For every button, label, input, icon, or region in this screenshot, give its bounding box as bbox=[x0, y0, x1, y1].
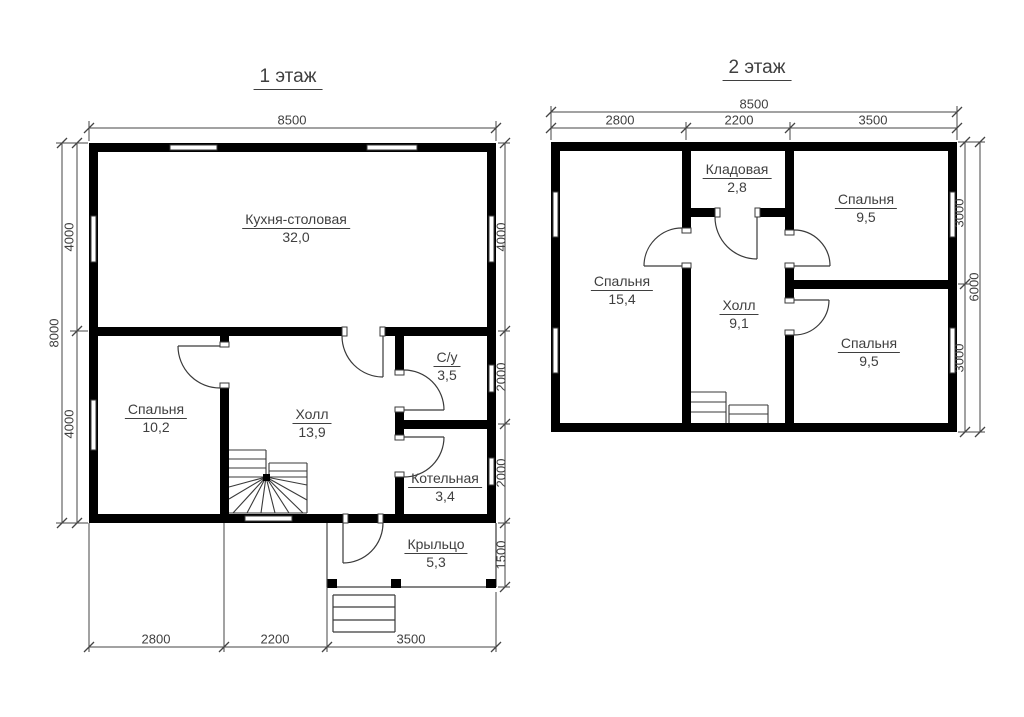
room-label-bedroom-bottom: Спальня 9,5 bbox=[838, 335, 900, 369]
dim-f1-right-3: 1500 bbox=[494, 541, 509, 570]
room-label-bathroom: С/у 3,5 bbox=[434, 349, 461, 383]
floor1-dimension-lines bbox=[56, 121, 510, 652]
dim-f1-top-total: 8500 bbox=[278, 113, 307, 128]
dim-f1-left-1: 4000 bbox=[62, 410, 77, 439]
room-label-hall2: Холл 9,1 bbox=[720, 297, 759, 331]
dim-f2-top-0: 2800 bbox=[606, 113, 635, 128]
room-area: 3,5 bbox=[434, 367, 461, 383]
door-swing-icon bbox=[794, 230, 830, 266]
stair-newel-post bbox=[263, 474, 270, 481]
room-label-hall1: Холл 13,9 bbox=[293, 406, 332, 440]
dim-f2-top-2: 3500 bbox=[859, 113, 888, 128]
dim-f1-left-total: 8000 bbox=[47, 319, 62, 348]
room-name: Холл bbox=[720, 297, 759, 315]
porch-post bbox=[327, 579, 337, 588]
room-area: 3,4 bbox=[408, 488, 482, 504]
room-name: Холл bbox=[293, 406, 332, 424]
room-name: Кладовая bbox=[703, 161, 772, 179]
dimension-ticks bbox=[546, 107, 985, 437]
porch-post bbox=[391, 579, 401, 588]
floor1-title: 1 этаж bbox=[254, 66, 323, 90]
dim-f2-right-total: 6000 bbox=[967, 273, 982, 302]
dim-f1-left-0: 4000 bbox=[62, 223, 77, 252]
window-icon bbox=[91, 400, 96, 450]
door-swing-icon bbox=[342, 336, 383, 377]
window-icon bbox=[91, 216, 96, 262]
dim-f1-bottom-1: 2200 bbox=[261, 632, 290, 647]
floor2-title: 2 этаж bbox=[723, 57, 792, 81]
room-label-storage: Кладовая 2,8 bbox=[703, 161, 772, 195]
window-icon bbox=[170, 145, 217, 150]
dim-f1-right-1: 2000 bbox=[494, 363, 509, 392]
room-name: Кухня-столовая bbox=[242, 211, 350, 229]
room-label-boiler: Котельная 3,4 bbox=[408, 470, 482, 504]
room-area: 5,3 bbox=[404, 554, 467, 570]
room-area: 32,0 bbox=[242, 229, 350, 245]
room-area: 2,8 bbox=[703, 179, 772, 195]
door-swing-icon bbox=[178, 346, 220, 388]
room-area: 15,4 bbox=[591, 291, 653, 307]
room-name: Котельная bbox=[408, 470, 482, 488]
room-name: Спальня bbox=[125, 401, 187, 419]
dim-f1-bottom-2: 3500 bbox=[397, 632, 426, 647]
dim-f2-top-total: 8500 bbox=[740, 97, 769, 112]
window-icon bbox=[367, 145, 417, 150]
room-label-porch: Крыльцо 5,3 bbox=[404, 536, 467, 570]
room-area: 13,9 bbox=[293, 424, 332, 440]
dim-f2-right-0: 3000 bbox=[952, 199, 967, 228]
room-name: Спальня bbox=[838, 335, 900, 353]
window-icon bbox=[553, 328, 558, 373]
room-area: 10,2 bbox=[125, 419, 187, 435]
room-area: 9,5 bbox=[838, 353, 900, 369]
window-icon bbox=[245, 516, 292, 521]
room-name: Спальня bbox=[835, 191, 897, 209]
room-label-kitchen: Кухня-столовая 32,0 bbox=[242, 211, 350, 245]
room-label-bedroom1: Спальня 10,2 bbox=[125, 401, 187, 435]
room-label-bedroom-large: Спальня 15,4 bbox=[591, 273, 653, 307]
dim-f1-bottom-0: 2800 bbox=[142, 632, 171, 647]
floorplan-page: 1 этаж 2 этаж Кухня-столовая 32,0 Спальн… bbox=[0, 0, 1024, 717]
porch-steps bbox=[333, 595, 395, 632]
floor2-dimension-lines bbox=[546, 106, 985, 437]
floor1-walls bbox=[89, 143, 496, 523]
dim-f1-right-2: 2000 bbox=[494, 459, 509, 488]
room-name: Спальня bbox=[591, 273, 653, 291]
dim-f2-top-1: 2200 bbox=[725, 113, 754, 128]
door-swing-icon bbox=[343, 523, 383, 563]
door-swing-icon bbox=[794, 300, 829, 335]
room-area: 9,5 bbox=[835, 209, 897, 225]
floor1-stairs bbox=[229, 450, 307, 513]
dimension-ticks bbox=[57, 123, 510, 652]
porch-post bbox=[486, 579, 496, 588]
door-swing-icon bbox=[715, 217, 757, 259]
room-name: Крыльцо bbox=[404, 536, 467, 554]
room-area: 9,1 bbox=[720, 315, 759, 331]
door-swing-icon bbox=[644, 228, 682, 266]
floor2-stairs bbox=[691, 392, 768, 423]
room-label-bedroom-top: Спальня 9,5 bbox=[835, 191, 897, 225]
room-name: С/у bbox=[434, 349, 461, 367]
dim-f1-right-0: 4000 bbox=[494, 223, 509, 252]
floor1-doors bbox=[178, 336, 444, 563]
window-icon bbox=[553, 192, 558, 237]
dim-f2-right-1: 3000 bbox=[952, 344, 967, 373]
